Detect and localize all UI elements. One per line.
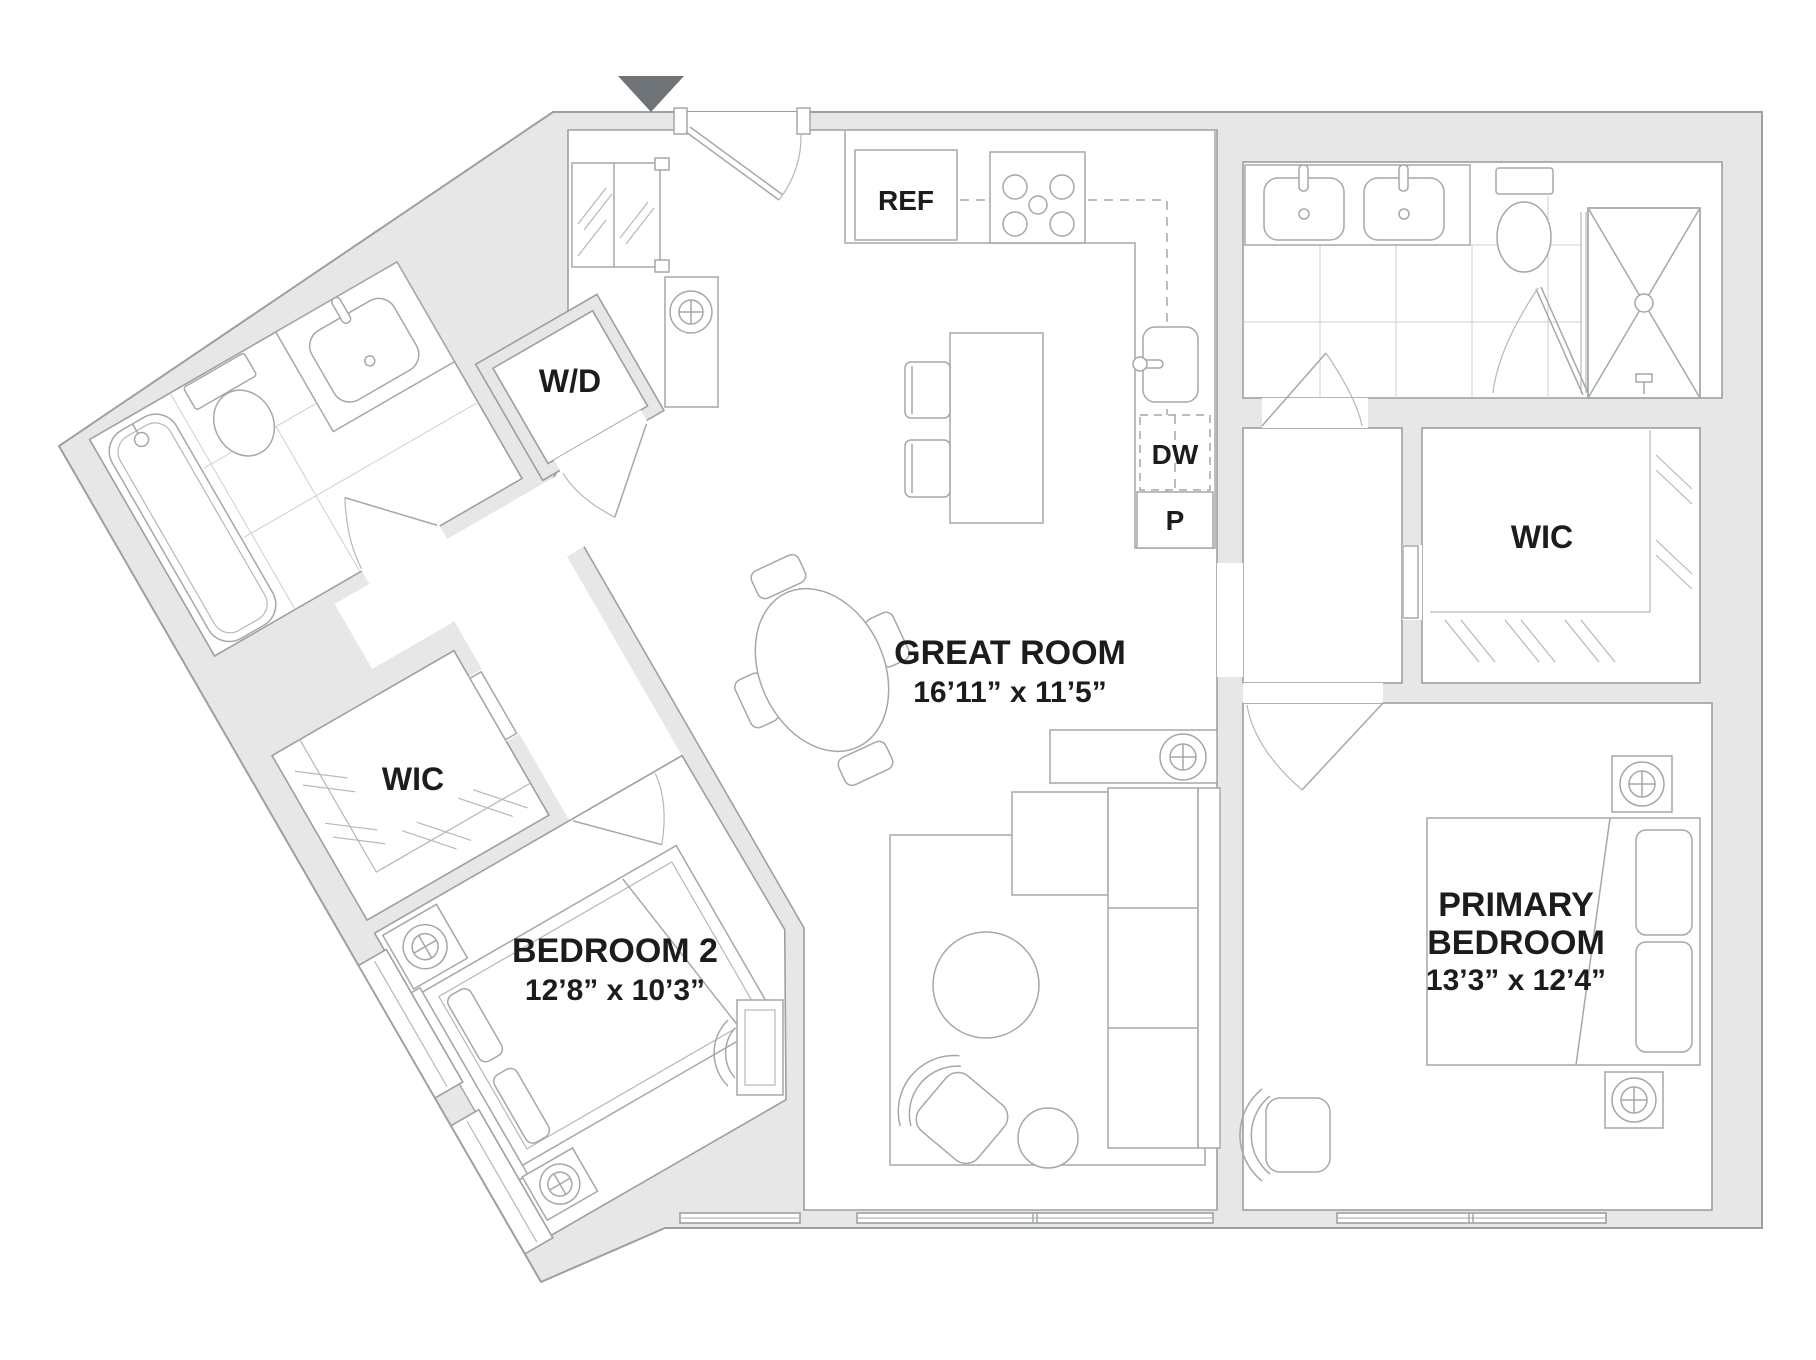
entry-opening [685,112,800,131]
primary-wic-label: WIC [1511,519,1573,555]
great-room-windows [857,1213,1213,1223]
washer-dryer-label: W/D [539,363,601,399]
primary-wic [1422,428,1700,683]
opening-vestibule-bedroom [1243,683,1383,703]
wic-door-leaf [1403,546,1418,618]
coffee-table [933,932,1039,1038]
entry-jamb-right [797,108,810,134]
side-table [1018,1108,1078,1168]
pillow [1636,942,1692,1052]
opening-greatroom-vestibule [1217,563,1243,677]
bedroom2-corner-window [680,1213,800,1223]
entry-jamb-left [674,108,687,134]
sofa-back [1198,788,1220,1148]
stove [990,152,1085,243]
primary-bedroom-dims: 13’3” x 12’4” [1426,964,1606,997]
primary-bedroom-windows [1337,1213,1606,1223]
double-vanity [1245,165,1470,245]
shower [1581,208,1700,398]
entry-marker-icon [618,76,684,112]
opening-vestibule-bathroom [1262,398,1368,428]
great-room-dims: 16’11” x 11’5” [913,676,1107,709]
pantry-label: P [1166,505,1185,536]
nightstand [1612,756,1672,812]
entry-console-table [665,277,718,407]
sofa-chaise [1012,792,1108,895]
nightstand [1605,1072,1663,1128]
entry-closet [572,158,669,272]
shower-head [1636,374,1652,382]
pillow [1636,830,1692,935]
bedroom-2-wic-label: WIC [382,761,444,797]
primary-bedroom-label-1: PRIMARY [1438,886,1594,924]
console-table [1050,730,1217,783]
toilet [1496,168,1553,272]
refrigerator-label: REF [878,185,934,216]
kitchen-sink [1133,327,1198,402]
great-room-label: GREAT ROOM [894,634,1126,672]
dishwasher-label: DW [1152,439,1199,470]
sofa-seat [1108,788,1198,1148]
floor-plan: GREAT ROOM 16’11” x 11’5” BEDROOM 2 12’8… [0,0,1816,1360]
bedroom-2-label: BEDROOM 2 [512,932,718,970]
bedroom-2-dims: 12’8” x 10’3” [525,974,705,1007]
primary-vestibule [1243,428,1402,683]
primary-bedroom-label-2: BEDROOM [1427,924,1605,962]
floor-plan-page: GREAT ROOM 16’11” x 11’5” BEDROOM 2 12’8… [0,0,1816,1360]
